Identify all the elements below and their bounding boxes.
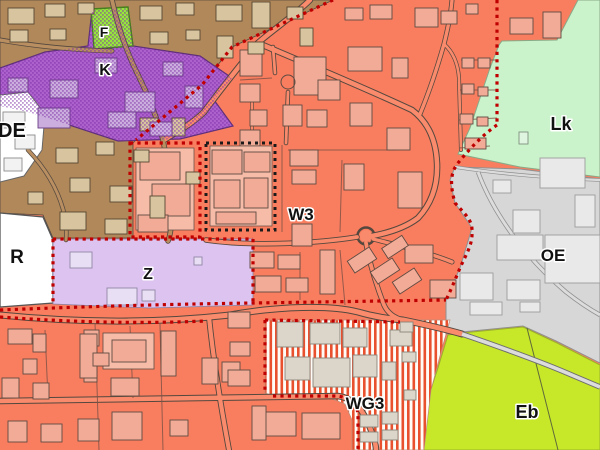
- zone-r-white: [0, 213, 53, 307]
- map-canvas: F K DE R Z W3 OE Lk WG3 Eb: [0, 0, 600, 450]
- zone-label-r: R: [10, 247, 24, 268]
- zone-label-oe: OE: [541, 246, 566, 265]
- zone-label-w3: W3: [288, 205, 314, 224]
- zone-label-f: F: [100, 24, 109, 40]
- roundabout-fill: [360, 230, 372, 242]
- building-lk: [519, 132, 528, 144]
- zone-label-lk: Lk: [550, 114, 572, 134]
- zone-label-wg3: WG3: [346, 394, 385, 413]
- zoning-map[interactable]: F K DE R Z W3 OE Lk WG3 Eb: [0, 0, 600, 450]
- zone-label-eb: Eb: [515, 402, 538, 422]
- zone-label-k: K: [99, 62, 111, 79]
- zone-label-z: Z: [143, 266, 153, 283]
- zone-label-de: DE: [0, 120, 26, 142]
